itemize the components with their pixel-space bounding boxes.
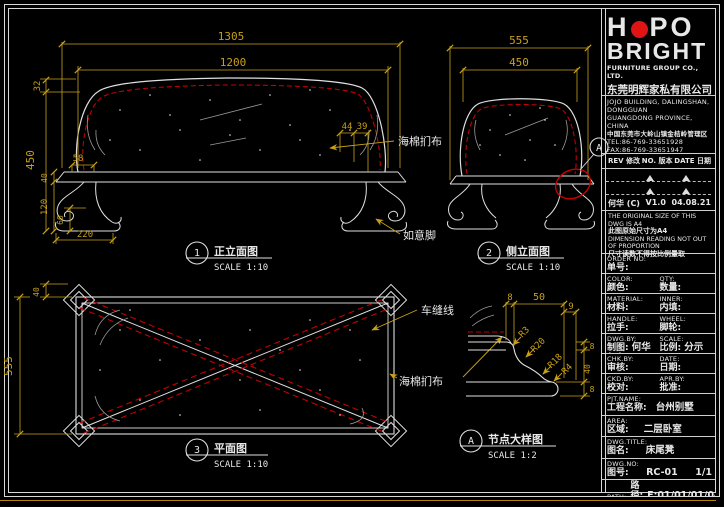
dim-front-cushion-width: 1200 [220, 56, 247, 69]
field-label-en: MATERIAL: [607, 295, 660, 303]
view2-title: 侧立面图 [506, 244, 550, 258]
dim-detail-s8a: 8 [590, 342, 595, 351]
field-label-en: PATH: [607, 493, 627, 496]
plan-view: 40 555 车缝线 海棉扪布 [2, 281, 502, 447]
view3-scale: SCALE 1:10 [214, 460, 268, 470]
dim-detail-r20: R20 [529, 336, 548, 355]
cad-sheet: 1305 1200 32 450 40 120 60 220 58 44 39 … [0, 0, 724, 507]
logo-sub-en: FURNITURE GROUP CO., LTD. [607, 64, 712, 80]
field-label-cn: 日期: [660, 363, 713, 373]
rev-col-date: DATE 日期 [674, 156, 711, 168]
dim-detail-r4: R4 [560, 362, 575, 377]
field-label-en: CHK.BY: [607, 355, 660, 363]
view1-title: 正立面图 [214, 244, 258, 258]
field-dwgby-scale: DWG.BY: 制图: 何华 (C) SCALE: 比例: 分示 [602, 334, 715, 354]
fax: FAX:86-769-33651947 [607, 146, 712, 154]
revision-empty-row [606, 169, 711, 182]
view2-scale: SCALE 1:10 [506, 263, 560, 273]
view1-number: 1 [194, 248, 200, 259]
field-handle-wheel: HANDLE: 拉手: WHEEL: 脚轮: [602, 314, 715, 334]
field-label-cn: 颜色: [607, 283, 660, 293]
revision-delta-icon [682, 175, 690, 181]
field-label-en: QTY: [660, 275, 713, 283]
side-elevation-view: 555 450 A [447, 34, 608, 229]
tel: TEL:86-769-33651928 [607, 138, 712, 146]
note-en-2: DIMENSION READING NOT OUT [608, 236, 712, 244]
field-label-cn: 图号: [607, 468, 629, 478]
dim-front-overall-width: 1305 [218, 30, 245, 43]
revision-row: 何华 (C) V1.0 04.08.21 [602, 195, 715, 211]
field-color-qty: COLOR: 颜色: QTY: 数量: [602, 274, 715, 294]
field-label-cn: 拉手: [607, 323, 660, 333]
dim-detail-9: 9 [568, 302, 573, 312]
field-label-cn: 区域: [607, 425, 629, 435]
dim-detail-s8b: 8 [590, 385, 595, 394]
field-label-cn: 校对: [607, 383, 660, 393]
field-label-en: WHEEL: [660, 315, 713, 323]
field-label-cn: 材料: [607, 303, 660, 313]
field-value: 分示 [684, 342, 703, 353]
field-label-cn: 比例: [660, 343, 682, 353]
dim-front-board: 40 [40, 173, 49, 183]
rev-version: V1.0 [646, 198, 666, 209]
drawing-number-row: DWG.NO: 图号: RC-01 1/1 [602, 459, 715, 480]
titleblock: H PO BRIGHT FURNITURE GROUP CO., LTD. 东莞… [601, 8, 715, 492]
dim-front-leg-lower: 60 [56, 215, 65, 225]
field-label-cn: 图名: [607, 446, 629, 456]
field-material-inner: MATERIAL: 材料: INNER: 内填: [602, 294, 715, 314]
field-label-cn: 路径: [631, 481, 644, 496]
contact-block: JOJO BUILDING, DALINGSHAN, DONGGUAN GUAN… [602, 96, 715, 154]
label-plan-seam: 车缝线 [421, 303, 454, 317]
field-label-en: APR.BY: [660, 375, 713, 383]
field-label-cn: 工程名称: [607, 403, 647, 413]
dim-side-cushion: 450 [509, 56, 529, 69]
field-label-en: DATE: [660, 355, 713, 363]
dim-detail-s40: 40 [583, 364, 592, 374]
address-cn: 中国东莞市大岭山镇金桔岭管理区 [607, 130, 712, 138]
notes-block: THE ORIGINAL SIZE OF THIS DWG IS A4 此图原始… [602, 211, 715, 254]
dim-side-overall: 555 [509, 34, 529, 47]
area-row: AREA: 区域: 二层卧室 [602, 416, 715, 437]
dim-front-inset: 58 [73, 154, 84, 164]
note-cn-1: 此图原始尺寸为A4 [608, 228, 712, 236]
field-label-cn: 脚轮: [660, 323, 713, 333]
logo-block: H PO BRIGHT FURNITURE GROUP CO., LTD. 东莞… [602, 8, 715, 96]
rev-date: 04.08.21 [672, 198, 711, 209]
field-label-en: INNER: [660, 295, 713, 303]
field-label-cn: 批准: [660, 383, 713, 393]
view4-title: 节点大样图 [488, 432, 543, 446]
dim-detail-50: 50 [533, 292, 545, 303]
path-value: E:01/01/01/0448 [647, 490, 715, 496]
path-row: PATH: 路径: E:01/01/01/0448 [602, 480, 715, 496]
revision-delta-icon [646, 175, 654, 181]
dim-front-edge-a: 44 [342, 122, 353, 132]
logo-po: PO [650, 14, 695, 40]
rev-by: 何华 (C) [608, 198, 640, 209]
view1-scale: SCALE 1:10 [214, 263, 268, 273]
address-en-1: JOJO BUILDING, DALINGSHAN, DONGGUAN [607, 98, 712, 114]
field-chk-date: CHK.BY: 审核: DATE: 日期: [602, 354, 715, 374]
label-front-upholstery: 海棉扪布 [398, 134, 442, 148]
label-plan-upholstery: 海棉扪布 [399, 374, 443, 388]
revision-empty-row [606, 182, 711, 195]
logo-hopo: H PO [607, 14, 712, 40]
view2-number: 2 [486, 248, 492, 259]
view4-scale: SCALE 1:2 [488, 451, 537, 461]
revision-header: REV 修改 NO. 版本 DATE 日期 [602, 154, 715, 169]
field-label-cn: 单号: [607, 263, 712, 273]
rev-col-rev: REV 修改 [608, 156, 640, 168]
drawing-number-value: RC-01 [646, 468, 678, 478]
project-name-row: PJT.NAME: 工程名称: 台州别墅 [602, 394, 715, 416]
dim-front-height: 450 [24, 150, 37, 170]
drawing-title-value: 床尾凳 [646, 445, 675, 456]
revision-delta-icon [646, 188, 654, 194]
drawing-title-row: DWG.TITLE: 图名: 床尾凳 [602, 437, 715, 459]
field-label-cn: 数量: [660, 283, 713, 293]
dim-front-arch: 32 [33, 81, 43, 92]
logo-red-dot-icon [631, 21, 648, 38]
logo-h: H [607, 14, 630, 40]
rev-col-no: NO. 版本 [642, 156, 673, 168]
dim-front-leg: 120 [40, 199, 50, 215]
dim-front-edge-b: 39 [357, 122, 368, 132]
company-name-cn: 东莞明辉家私有限公司 [607, 82, 712, 96]
field-label-en: HANDLE: [607, 315, 660, 323]
view4-letter: A [468, 436, 474, 447]
dim-plan-leg: 40 [32, 287, 41, 297]
dim-plan-depth: 555 [2, 356, 15, 376]
revision-delta-icon [682, 188, 690, 194]
address-en-2: GUANGDONG PROVINCE, CHINA [607, 114, 712, 130]
detail-view: 8 50 9 R3 R20 R18 R4 [466, 292, 595, 399]
field-label-cn: 审核: [607, 363, 660, 373]
project-name-value: 台州别墅 [656, 402, 694, 413]
label-front-leg: 如意脚 [403, 228, 436, 242]
front-elevation-view: 1305 1200 32 450 40 120 60 220 58 44 39 … [24, 30, 442, 244]
logo-bright: BRIGHT [607, 40, 712, 62]
note-en-1: THE ORIGINAL SIZE OF THIS DWG IS A4 [608, 213, 712, 228]
area-value: 二层卧室 [644, 424, 682, 435]
field-label-cn: 内填: [660, 303, 713, 313]
view3-number: 3 [194, 445, 200, 456]
dim-detail-r3: R3 [517, 325, 532, 340]
view3-title: 平面图 [214, 442, 247, 455]
field-label-en: COLOR: [607, 275, 660, 283]
field-ckd-apr: CKD.BY: 校对: APR.BY: 批准: [602, 374, 715, 394]
field-label-en: CKD.BY: [607, 375, 660, 383]
dim-front-foot-width: 220 [77, 230, 93, 240]
sheet-count-value: 1/1 [695, 468, 712, 478]
dim-detail-8: 8 [507, 293, 512, 303]
